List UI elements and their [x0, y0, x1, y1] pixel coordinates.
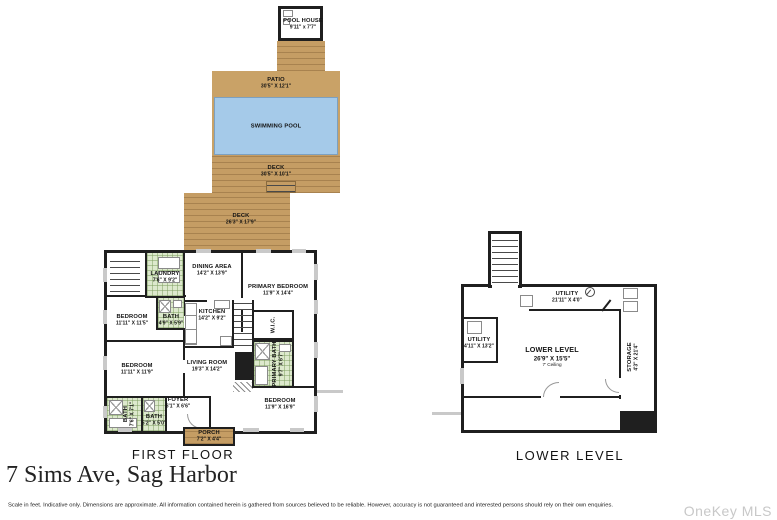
shower-stall: [144, 400, 155, 412]
stair-hatch: [233, 382, 253, 392]
window: [290, 428, 304, 432]
shower-stall: [255, 343, 270, 360]
equipment-icon: [623, 288, 638, 299]
room-label-wic: W.I.C.: [269, 317, 276, 334]
window: [314, 300, 318, 314]
room-label-swimming-pool: SWIMMING POOL: [251, 122, 302, 129]
equipment-icon: [520, 295, 533, 307]
wall-segment: [461, 317, 498, 319]
pool-house-deck: [277, 41, 325, 71]
stairs: [492, 235, 518, 283]
wall-segment: [560, 396, 620, 398]
room-label-bedroom-2: BEDROOM 11'11" X 11'9": [121, 362, 153, 376]
pool-equipment-icon: [283, 10, 293, 17]
room-label-dining-area: DINING AREA 14'2" X 13'9": [192, 263, 231, 277]
wall-segment: [241, 252, 243, 298]
window: [196, 249, 211, 253]
equipment-icon: [623, 301, 638, 312]
door-opening: [619, 378, 621, 395]
lower-level-caption: LOWER LEVEL: [490, 448, 650, 463]
deck-steps: [266, 181, 296, 193]
room-label-bedroom-1: BEDROOM 11'11" X 11'5": [116, 313, 148, 327]
disclaimer-text: Scale in feet. Indicative only. Dimensio…: [8, 502, 613, 508]
window-well-line: [432, 412, 461, 415]
wall-segment: [461, 396, 541, 398]
room-label-lower-level: LOWER LEVEL 26'9" X 15'5" 7' Ceiling: [525, 345, 579, 368]
washer-icon: [158, 257, 180, 269]
wall-segment: [529, 309, 621, 311]
window: [103, 310, 107, 324]
room-label-storage: STORAGE 4'3" X 21'4": [626, 342, 640, 371]
wall-segment: [183, 346, 234, 348]
sink-icon: [173, 300, 182, 308]
floorplan-canvas: POOL HOUSE 9'11" x 7'7" PATIO 30'5" X 12…: [0, 0, 777, 520]
window: [314, 342, 318, 358]
fridge-icon: [220, 336, 232, 346]
wall-block: [620, 411, 654, 431]
fireplace: [235, 352, 253, 380]
room-label-upper-deck: DECK 30'5" X 10'1": [261, 164, 291, 178]
shower-stall: [159, 300, 171, 313]
window: [118, 428, 132, 432]
bathtub: [255, 366, 268, 385]
room-label-laundry: LAUNDRY 7'6" X 9'2": [151, 270, 180, 284]
address-title: 7 Sims Ave, Sag Harbor: [6, 462, 237, 489]
window: [256, 249, 271, 253]
window: [314, 396, 318, 412]
room-label-bath-3: BATH 5'2" X 5'0": [142, 413, 167, 427]
window: [292, 249, 306, 253]
room-label-bath-2: BATH 7'6" X 7'1": [122, 402, 136, 427]
room-label-foyer: FOYER 6'1" X 6'6": [166, 396, 191, 410]
room-label-utility-left: UTILITY 4'11" X 13'2": [464, 336, 494, 350]
kitchen-counter: [185, 303, 197, 345]
room-label-pool-house: POOL HOUSE 9'11" x 7'7": [283, 17, 323, 31]
shower-stall: [109, 400, 123, 415]
wall-segment: [496, 317, 498, 363]
wall-segment: [156, 328, 185, 330]
room-label-bath-1: BATH 4'9" X 5'9": [159, 313, 184, 327]
room-label-primary-bedroom: PRIMARY BEDROOM 11'9" X 14'4": [248, 283, 308, 297]
equipment-icon: [467, 321, 482, 334]
wall-segment: [461, 361, 498, 363]
window: [460, 368, 464, 384]
wall-segment: [104, 340, 184, 342]
room-label-patio: PATIO 30'5" X 12'1": [261, 76, 291, 90]
room-label-living-room: LIVING ROOM 19'3" X 14'2": [187, 359, 227, 373]
window: [103, 406, 107, 418]
room-label-primary-bath: PRIMARY BATH 9'7" X 6'7": [271, 341, 285, 386]
room-label-porch: PORCH 7'2" X 4'4": [197, 429, 222, 443]
stairs: [234, 301, 252, 346]
room-label-bedroom-3: BEDROOM 11'9" X 16'9": [264, 397, 295, 411]
first-floor-caption: FIRST FLOOR: [103, 447, 263, 462]
exterior-step-line: [317, 390, 343, 393]
door-opening: [183, 360, 185, 373]
room-label-house-deck: DECK 26'3" X 17'9": [226, 212, 256, 226]
entry-stairs: [110, 256, 140, 292]
window: [314, 264, 318, 280]
window: [103, 356, 107, 370]
wall-segment: [183, 300, 207, 302]
room-label-utility-top: UTILITY 21'11" X 4'0": [552, 290, 582, 304]
stair-opening: [492, 283, 518, 289]
window: [243, 428, 259, 432]
mls-watermark: OneKey MLS: [684, 503, 772, 519]
window: [103, 268, 107, 282]
room-label-kitchen: KITCHEN 14'2" X 9'2": [198, 308, 225, 322]
